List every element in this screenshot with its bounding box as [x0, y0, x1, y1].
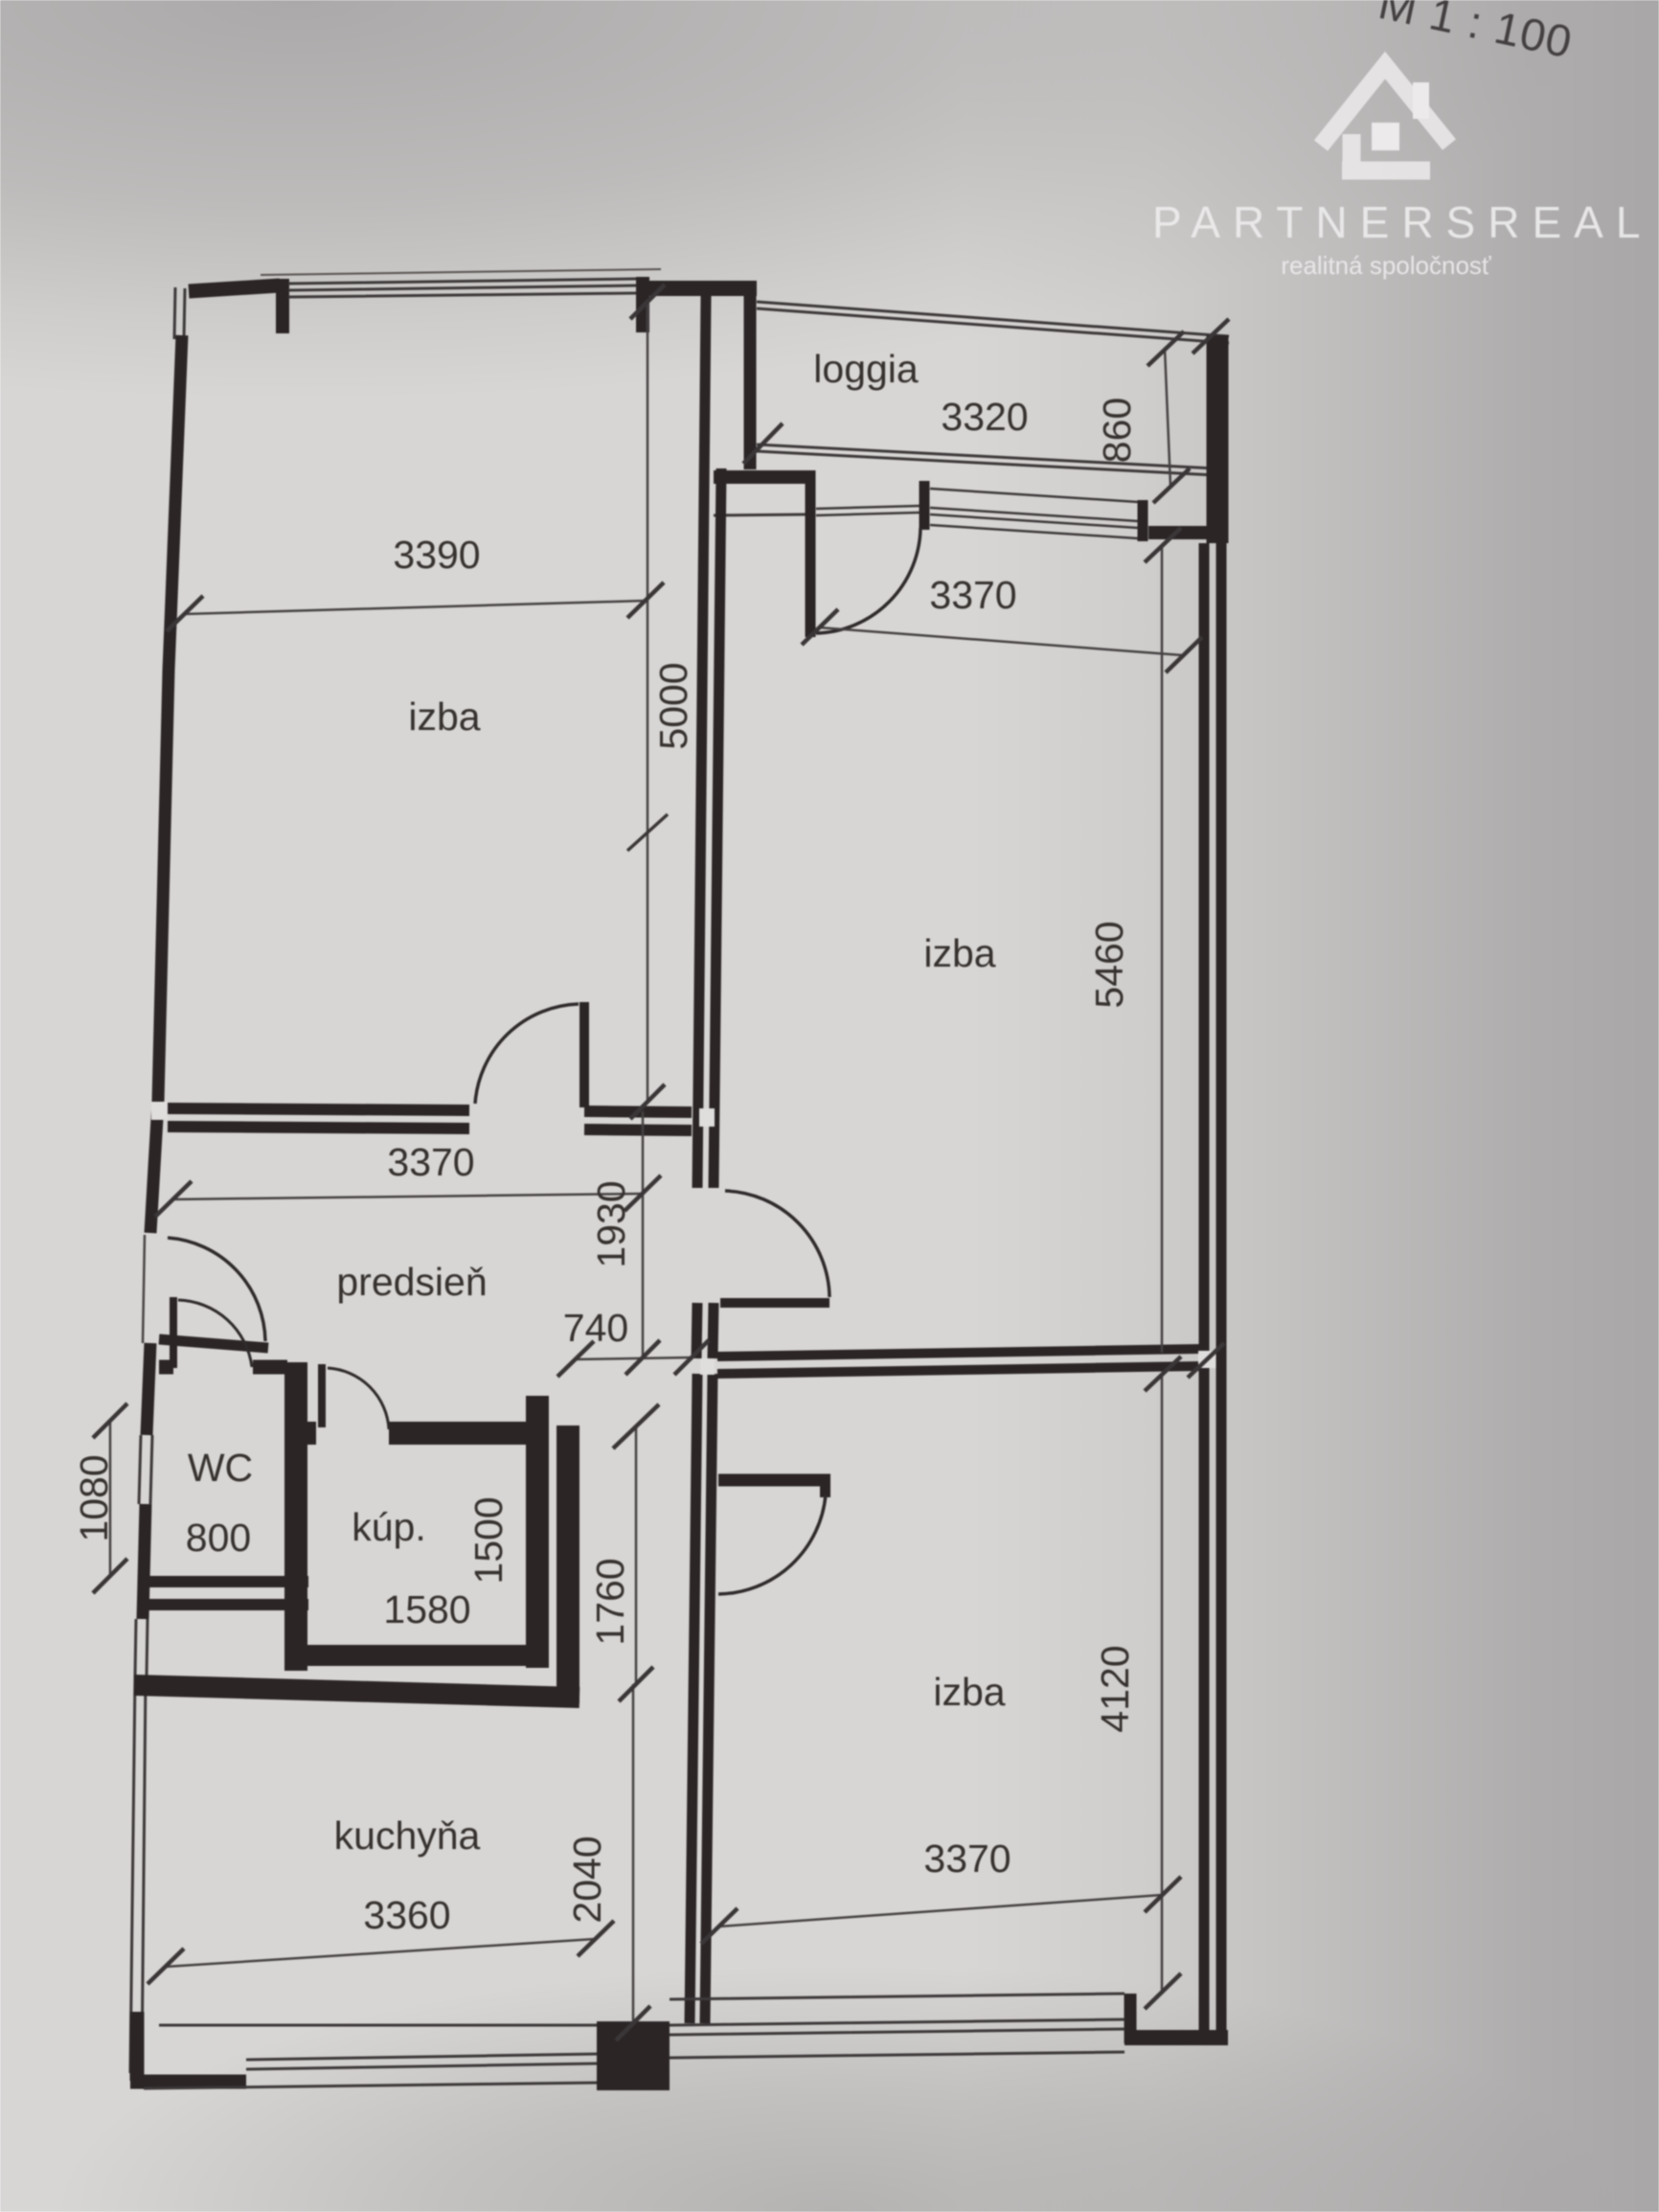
svg-text:3390: 3390	[393, 533, 480, 577]
svg-text:realitná spoločnosť: realitná spoločnosť	[1281, 251, 1491, 280]
svg-text:5000: 5000	[651, 662, 695, 749]
svg-text:2040: 2040	[565, 1836, 609, 1923]
svg-text:izba: izba	[923, 931, 995, 975]
svg-text:1080: 1080	[72, 1454, 116, 1541]
svg-text:3360: 3360	[363, 1893, 450, 1937]
svg-text:3370: 3370	[387, 1140, 474, 1184]
svg-text:5460: 5460	[1087, 921, 1131, 1008]
svg-text:PARTNERSREAL: PARTNERSREAL	[1152, 197, 1652, 247]
svg-text:kuchyňa: kuchyňa	[334, 1813, 481, 1858]
svg-text:WC: WC	[188, 1446, 253, 1490]
svg-text:1580: 1580	[383, 1587, 470, 1631]
svg-text:izba: izba	[408, 695, 480, 739]
svg-text:800: 800	[186, 1516, 251, 1560]
svg-text:1500: 1500	[466, 1496, 511, 1584]
svg-text:kúp.: kúp.	[352, 1505, 426, 1549]
svg-text:loggia: loggia	[813, 347, 919, 391]
svg-text:3370: 3370	[929, 573, 1016, 617]
svg-text:izba: izba	[933, 1670, 1005, 1714]
svg-text:3370: 3370	[923, 1836, 1011, 1881]
svg-text:1930: 1930	[589, 1180, 633, 1267]
svg-text:860: 860	[1095, 398, 1139, 463]
svg-text:3320: 3320	[941, 395, 1028, 439]
svg-text:740: 740	[563, 1306, 628, 1350]
svg-text:1760: 1760	[588, 1558, 632, 1645]
svg-text:4120: 4120	[1093, 1645, 1137, 1732]
svg-text:predsieň: predsieň	[336, 1260, 487, 1304]
